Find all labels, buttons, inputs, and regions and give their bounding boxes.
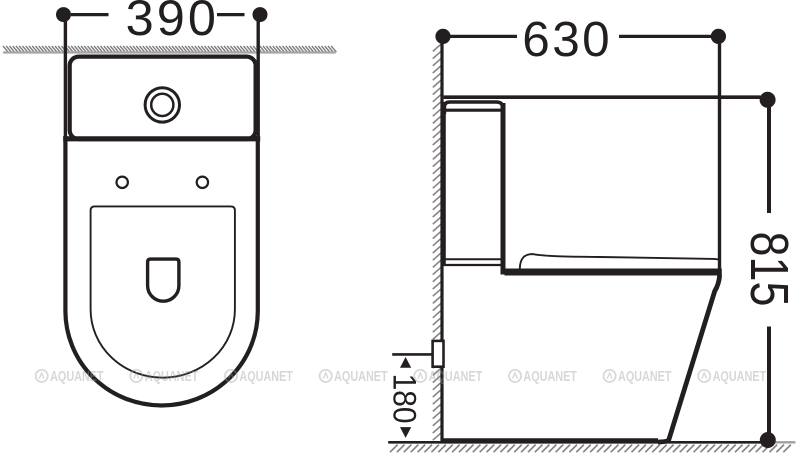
- svg-text:815: 815: [739, 232, 799, 307]
- svg-text:AQUANET: AQUANET: [713, 368, 767, 385]
- svg-text:AQUANET: AQUANET: [145, 368, 199, 385]
- svg-text:AQUANET: AQUANET: [239, 368, 293, 385]
- svg-text:390: 390: [126, 0, 219, 46]
- svg-text:AQUANET: AQUANET: [523, 368, 577, 385]
- svg-text:AQUANET: AQUANET: [429, 368, 483, 385]
- svg-text:AQUANET: AQUANET: [334, 368, 388, 385]
- svg-text:630: 630: [522, 12, 612, 67]
- svg-text:AQUANET: AQUANET: [618, 368, 672, 385]
- svg-text:AQUANET: AQUANET: [50, 368, 104, 385]
